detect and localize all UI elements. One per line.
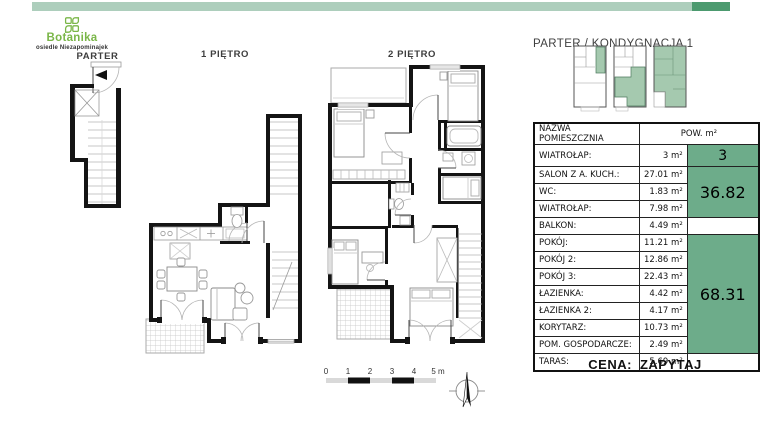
toilet [231, 207, 243, 215]
bed [443, 177, 481, 199]
room-name: POKÓJ: [534, 235, 640, 252]
table-row: SALON Z A. KUCH.: 27.01 m² 36.82 [534, 167, 759, 184]
floor-label-2pietro: 2 PIĘTRO [372, 49, 452, 60]
table-header-row: NAZWA POMIESZCZNIA POW. m² [534, 123, 759, 145]
room-area: 2.49 m² [640, 337, 688, 354]
room-area: 12.86 m² [640, 252, 688, 269]
room-name: POKÓJ 2: [534, 252, 640, 269]
brand-logo[interactable]: Botanika osiedle Niezapominajek [30, 14, 114, 51]
room-name: POM. GOSPODARCZE: [534, 337, 640, 354]
floor-label-1pietro: 1 PIĘTRO [185, 49, 265, 60]
room-name: ŁAZIENKA: [534, 286, 640, 303]
header-accent-block [692, 2, 730, 11]
svg-text:3: 3 [390, 367, 395, 376]
price-value: ZAPYTAJ [640, 357, 702, 372]
wardrobe [333, 170, 405, 179]
wardrobe [437, 238, 457, 282]
price-label: CENA: [588, 357, 632, 372]
table-row: WIATROŁAP: 3 m² 3 [534, 145, 759, 167]
area-total-group1: 3 [687, 145, 759, 167]
area-total-empty [687, 218, 759, 235]
floor-thumbnail-1pietro[interactable] [613, 45, 647, 113]
bathtub [447, 126, 481, 146]
entrance-arrow-icon [95, 70, 107, 80]
brand-name: Botanika [30, 32, 114, 44]
table-header-area: POW. m² [640, 123, 759, 145]
price-line: CENA:ZAPYTAJ [533, 357, 757, 372]
svg-text:1: 1 [346, 367, 351, 376]
floorplan-parter [58, 58, 132, 214]
area-total-group2: 36.82 [687, 167, 759, 218]
room-area: 11.21 m² [640, 235, 688, 252]
room-name: WIATROŁAP: [534, 201, 640, 218]
stairs [88, 120, 116, 204]
room-name: POKÓJ 3: [534, 269, 640, 286]
room-name: WIATROŁAP: [534, 145, 640, 167]
svg-text:0: 0 [324, 367, 329, 376]
room-area: 4.17 m² [640, 303, 688, 320]
desk [382, 152, 402, 164]
terrace [337, 289, 391, 339]
floorplan-2pietro [322, 60, 517, 362]
kitchen-counter [154, 227, 247, 240]
room-area: 4.42 m² [640, 286, 688, 303]
floorplan-1pietro-draw [140, 60, 325, 362]
svg-text:4: 4 [412, 367, 417, 376]
floor-thumbnail-parter[interactable] [573, 45, 607, 113]
header-accent-bar [32, 2, 692, 11]
room-area: 10.73 m² [640, 320, 688, 337]
table-row: BALKON: 4.49 m² [534, 218, 759, 235]
room-area: 4.49 m² [640, 218, 688, 235]
shaft-box [75, 90, 99, 116]
room-name: BALKON: [534, 218, 640, 235]
room-area: 3 m² [640, 145, 688, 167]
table-header-name: NAZWA POMIESZCZNIA [534, 123, 640, 145]
balcony [331, 68, 406, 103]
room-area: 27.01 m² [640, 167, 688, 184]
room-area: 22.43 m² [640, 269, 688, 286]
brand-logo-icon [64, 17, 80, 33]
scale-bar: 0 1 2 3 4 5 m [315, 360, 490, 415]
svg-text:5 m: 5 m [431, 367, 445, 376]
area-total-group3: 68.31 [687, 235, 759, 354]
room-area: 1.83 m² [640, 184, 688, 201]
page: Botanika osiedle Niezapominajek PARTER 1… [0, 0, 760, 428]
room-name: ŁAZIENKA 2: [534, 303, 640, 320]
balcony [146, 319, 204, 353]
north-arrow-icon [449, 372, 485, 407]
floor-thumbnail-2pietro[interactable] [653, 45, 687, 113]
svg-text:2: 2 [368, 367, 373, 376]
table-row: POKÓJ: 11.21 m² 68.31 [534, 235, 759, 252]
kitchen-island [170, 243, 190, 259]
area-table: NAZWA POMIESZCZNIA POW. m² WIATROŁAP: 3 … [533, 122, 760, 372]
room-name: WC: [534, 184, 640, 201]
window [268, 338, 294, 344]
room-name: SALON Z A. KUCH.: [534, 167, 640, 184]
room-area: 7.98 m² [640, 201, 688, 218]
room-name: KORYTARZ: [534, 320, 640, 337]
